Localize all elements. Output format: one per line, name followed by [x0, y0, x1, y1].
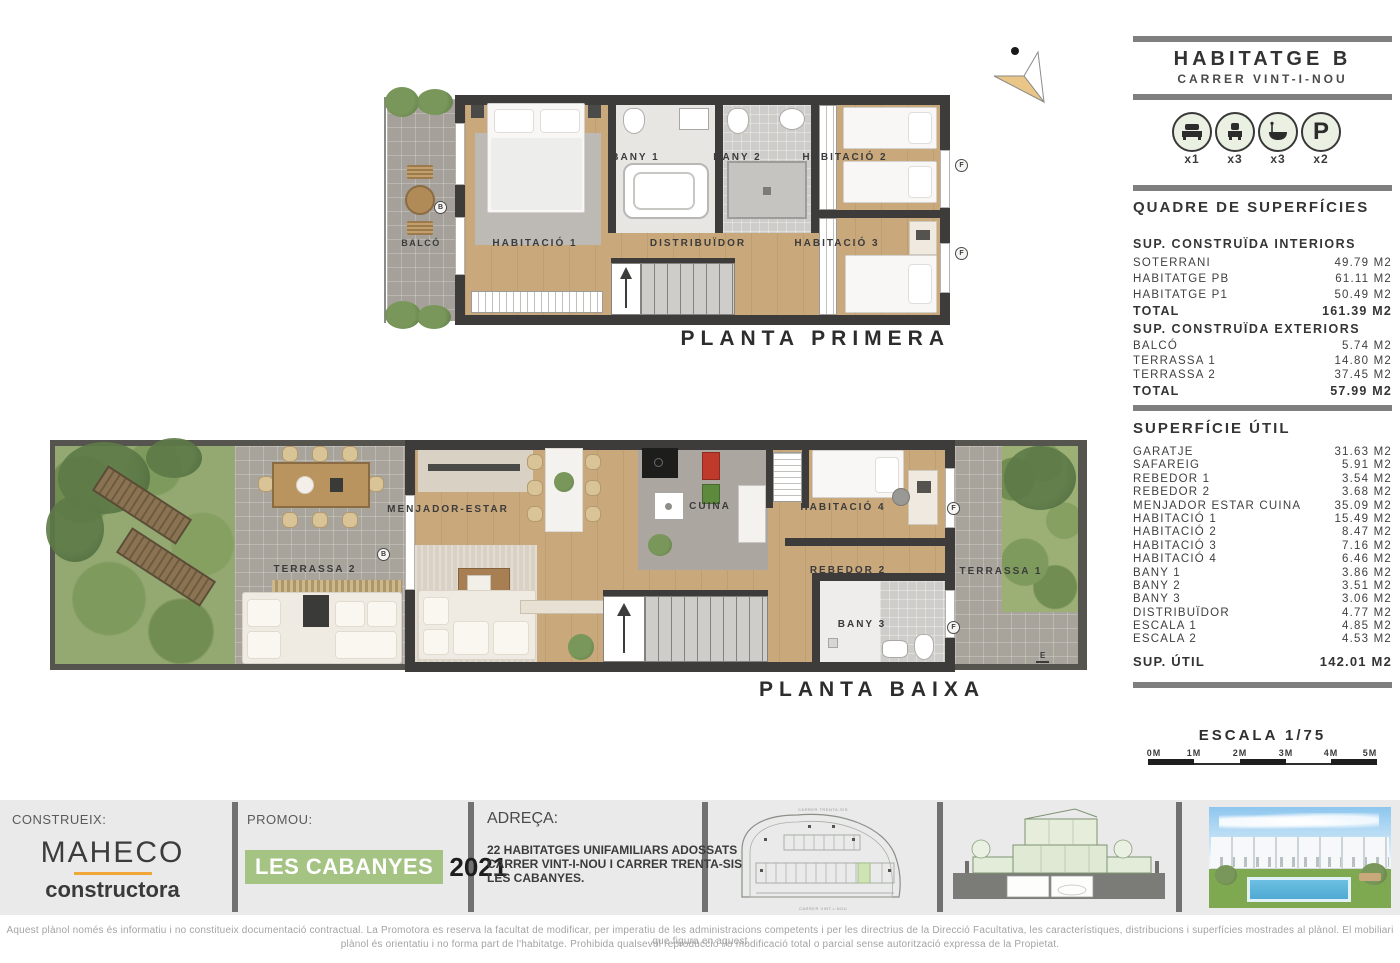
sink: [779, 108, 805, 130]
table-row: HABITATGE PB61.11 M2: [1133, 273, 1392, 285]
site-plan-thumbnail: CARRER TRENTA-SIS CARRER VINT-I-NOU: [712, 805, 934, 911]
plant: [417, 89, 453, 115]
nightstand: [471, 105, 484, 118]
chair: [585, 506, 601, 522]
staircase: [641, 263, 735, 315]
double-bed: [487, 103, 585, 213]
chair: [585, 454, 601, 470]
window: [945, 468, 955, 528]
table-row: MENJADOR ESTAR CUINA35.09 M2: [1133, 500, 1392, 513]
partition-wall: [812, 573, 820, 662]
render-thumbnail: [1209, 807, 1391, 908]
chair: [527, 454, 543, 470]
stair-landing: [611, 263, 641, 315]
kitchen-cabinet: [738, 485, 766, 543]
pergola-fringe: [272, 580, 402, 592]
shower: [727, 161, 807, 219]
table-total-row: TOTAL57.99 M2: [1133, 384, 1392, 398]
room-label-menjador: MENJADOR-ESTAR: [380, 504, 516, 515]
scale-tick: 5M: [1363, 748, 1378, 758]
render-bush: [1215, 865, 1237, 885]
chair: [312, 512, 328, 528]
bathtub-count: x3: [1258, 152, 1298, 166]
separator-bar: [1133, 682, 1392, 688]
plant: [554, 472, 574, 492]
single-bed: [845, 255, 937, 313]
toilet: [914, 634, 934, 660]
render-buildings: [1211, 837, 1389, 869]
balcony-table: [405, 185, 435, 215]
closet: [819, 218, 837, 315]
double-bed-count: x1: [1172, 152, 1212, 166]
table-row: HABITACIÓ 28.47 M2: [1133, 526, 1392, 539]
scale-tick: 3M: [1279, 748, 1294, 758]
footer-divider: [232, 802, 238, 912]
stair-wall: [766, 450, 773, 508]
tree: [46, 496, 104, 562]
room-label-hab1: HABITACIÓ 1: [475, 238, 595, 249]
table-row: TERRASSA 237.45 M2: [1133, 369, 1392, 381]
chair: [282, 512, 298, 528]
table-row: HABITACIÓ 37.16 M2: [1133, 540, 1392, 553]
room-label-bany2: BANY 2: [690, 152, 785, 163]
room-label-cuina: CUINA: [650, 501, 770, 512]
stair-landing: [603, 596, 645, 662]
chair: [312, 446, 328, 462]
separator-bar: [1133, 94, 1392, 100]
sheet-subtitle: CARRER VINT-I-NOU: [1133, 72, 1392, 86]
vegetable-tray: [702, 452, 720, 480]
table-row: ESCALA 24.53 M2: [1133, 633, 1392, 646]
promotion-logo: LES CABANYES 2021: [245, 850, 507, 884]
sofa: [418, 590, 536, 660]
room-label-bany1: BANY 1: [588, 152, 683, 163]
plant: [568, 634, 594, 660]
promotion-name: LES CABANYES: [245, 850, 443, 884]
window: [940, 150, 950, 208]
site-wall: [1078, 440, 1087, 670]
chair: [368, 476, 384, 492]
sheet-title: HABITATGE B: [1133, 48, 1392, 71]
separator-bar: [1133, 405, 1392, 411]
scale-title: ESCALA 1/75: [1133, 727, 1392, 744]
builder-logo: MAHECO constructora: [30, 836, 195, 903]
stair-wall: [802, 450, 809, 508]
single-bed: [812, 450, 904, 498]
balcony-railing: [384, 97, 386, 323]
separator-bar: [1133, 36, 1392, 42]
table-row: REBEDOR 13.54 M2: [1133, 473, 1392, 486]
partition-wall: [812, 573, 945, 581]
footer-divider: [1176, 802, 1182, 912]
scale-tick: 1M: [1187, 748, 1202, 758]
outdoor-sofa: [242, 592, 402, 664]
table-row: GARATJE31.63 M2: [1133, 446, 1392, 459]
chair: [527, 480, 543, 496]
desk: [909, 221, 937, 255]
table-row: BALCÓ5.74 M2: [1133, 340, 1392, 352]
window: [455, 217, 465, 275]
parking-letter: P: [1313, 118, 1329, 146]
scale-bar: 0M 1M 2M 3M 4M 5M: [1148, 748, 1377, 766]
exteriors-heading: SUP. CONSTRUÏDA EXTERIORS: [1133, 322, 1360, 336]
plan-primera: BALCÓ B HABITACIÓ 1 BANY 1 BANY 2 HABITA…: [383, 95, 950, 325]
disclaimer-line: plànol és orientatiu i no forma part de …: [0, 939, 1400, 950]
shower-drain: [828, 638, 838, 648]
room-label-hab4: HABITACIÓ 4: [783, 502, 903, 513]
window: [940, 243, 950, 293]
scale-tick: 4M: [1324, 748, 1339, 758]
chair: [342, 446, 358, 462]
address-block: 22 HABITATGES UNIFAMILIARS ADOSSATS CARR…: [487, 843, 742, 885]
table-row: HABITATGE P150.49 M2: [1133, 289, 1392, 301]
amenity-icons: x1 x3 x3 P x2: [1172, 112, 1352, 166]
plant: [648, 534, 672, 556]
site-plan-top-label: CARRER TRENTA-SIS: [712, 807, 934, 812]
single-bed: [843, 161, 937, 203]
interiors-heading: SUP. CONSTRUÏDA INTERIORS: [1133, 237, 1356, 251]
sideboard-area: [418, 450, 533, 492]
marker-f: F: [947, 621, 960, 634]
table-row: REBEDOR 23.68 M2: [1133, 486, 1392, 499]
room-label-balco: BALCÓ: [383, 238, 459, 248]
table-row: TERRASSA 114.80 M2: [1133, 355, 1392, 367]
toilet: [727, 108, 749, 134]
table-row: SOTERRANI49.79 M2: [1133, 257, 1392, 269]
util-total-row: SUP. ÚTIL142.01 M2: [1133, 654, 1392, 669]
chair: [527, 506, 543, 522]
partition-wall: [819, 210, 940, 218]
table-title: QUADRE DE SUPERFÍCIES: [1133, 199, 1369, 216]
room-label-hab3: HABITACIÓ 3: [777, 238, 897, 249]
balcony-bench: [407, 165, 433, 179]
cooktop: [642, 448, 678, 478]
render-lounger: [1359, 873, 1381, 881]
marker-e: E: [1036, 651, 1049, 663]
table-row: HABITACIÓ 115.49 M2: [1133, 513, 1392, 526]
console-shelf: [520, 600, 610, 614]
table-row: HABITACIÓ 46.46 M2: [1133, 553, 1392, 566]
desk: [908, 470, 938, 525]
room-label-bany3: BANY 3: [802, 619, 922, 630]
single-bed: [843, 107, 937, 149]
staircase: [645, 596, 768, 662]
plant: [385, 301, 421, 329]
table-total-row: TOTAL161.39 M2: [1133, 304, 1392, 318]
scale-tick: 2M: [1233, 748, 1248, 758]
balcony-bench: [407, 221, 433, 235]
util-table: GARATJE31.63 M2 SAFAREIG5.91 M2 REBEDOR …: [1133, 446, 1392, 647]
plan-baixa-title: PLANTA BAIXA: [742, 678, 1002, 702]
table-row: SAFAREIG5.91 M2: [1133, 459, 1392, 472]
plan-primera-title: PLANTA PRIMERA: [660, 327, 950, 351]
partition-wall: [811, 105, 819, 233]
construeix-label: CONSTRUEIX:: [12, 812, 106, 827]
toilet: [623, 108, 645, 134]
dining-table: [272, 462, 370, 508]
elevation-thumbnail: [945, 805, 1173, 911]
sink: [679, 108, 709, 130]
builder-name: MAHECO: [30, 836, 195, 870]
render-pool: [1247, 877, 1351, 902]
plant: [417, 305, 451, 329]
marker-b: B: [377, 548, 390, 561]
table-row: ESCALA 14.85 M2: [1133, 620, 1392, 633]
tree: [146, 438, 202, 478]
partition-wall: [608, 105, 616, 233]
builder-underline: [74, 872, 152, 875]
single-bed-icon: [1215, 112, 1255, 152]
scale-segment: [1148, 759, 1194, 765]
partition-wall: [785, 538, 945, 546]
promou-label: PROMOU:: [247, 812, 313, 827]
chair: [585, 480, 601, 496]
parking-icon: P: [1301, 112, 1341, 152]
footer-divider: [937, 802, 943, 912]
marker-f: F: [947, 502, 960, 515]
chair: [342, 512, 358, 528]
tv-console: [428, 464, 520, 471]
chair: [282, 446, 298, 462]
bathtub: [623, 163, 709, 219]
marker-b: B: [434, 201, 447, 214]
render-clouds: [1219, 813, 1379, 831]
bathtub-icon: [1258, 112, 1298, 152]
plant: [385, 87, 419, 117]
partition-wall: [715, 105, 723, 233]
window: [455, 123, 465, 185]
nightstand: [588, 105, 601, 118]
staircase-small: [773, 452, 802, 502]
address-line: LES CABANYES.: [487, 871, 742, 885]
parking-count: x2: [1301, 152, 1341, 166]
table-row: BANY 33.06 M2: [1133, 593, 1392, 606]
scale-segment: [1240, 759, 1286, 765]
double-bed-icon: [1172, 112, 1212, 152]
table-row: BANY 13.86 M2: [1133, 567, 1392, 580]
address-line: CARRER VINT-I-NOU I CARRER TRENTA-SIS: [487, 857, 742, 871]
room-label-terrassa1: TERRASSA 1: [941, 566, 1061, 577]
address-line: 22 HABITATGES UNIFAMILIARS ADOSSATS: [487, 843, 742, 857]
north-arrow-icon: [988, 40, 1050, 112]
scale-segment: [1331, 759, 1377, 765]
tree: [1004, 446, 1076, 510]
adreca-label: ADREÇA:: [487, 810, 558, 828]
table-row: BANY 23.51 M2: [1133, 580, 1392, 593]
marker-f: F: [955, 159, 968, 172]
table-row: DISTRIBUÏDOR4.77 M2: [1133, 607, 1392, 620]
builder-sub: constructora: [30, 877, 195, 903]
separator-bar: [1133, 185, 1392, 191]
scale-tick: 0M: [1147, 748, 1162, 758]
marker-f: F: [955, 247, 968, 260]
room-label-distribuidor: DISTRIBUÏDOR: [638, 238, 758, 249]
single-bed-count: x3: [1215, 152, 1255, 166]
wardrobe: [471, 291, 603, 313]
site-plan-bottom-label: CARRER VINT-I-NOU: [712, 906, 934, 911]
plan-baixa: TERRASSA 2 B MENJADOR-ESTAR: [50, 440, 1087, 672]
room-label-hab2: HABITACIÓ 2: [785, 152, 905, 163]
room-label-terrassa2: TERRASSA 2: [255, 564, 375, 575]
sink: [882, 640, 908, 658]
util-heading: SUPERFÍCIE ÚTIL: [1133, 420, 1291, 437]
